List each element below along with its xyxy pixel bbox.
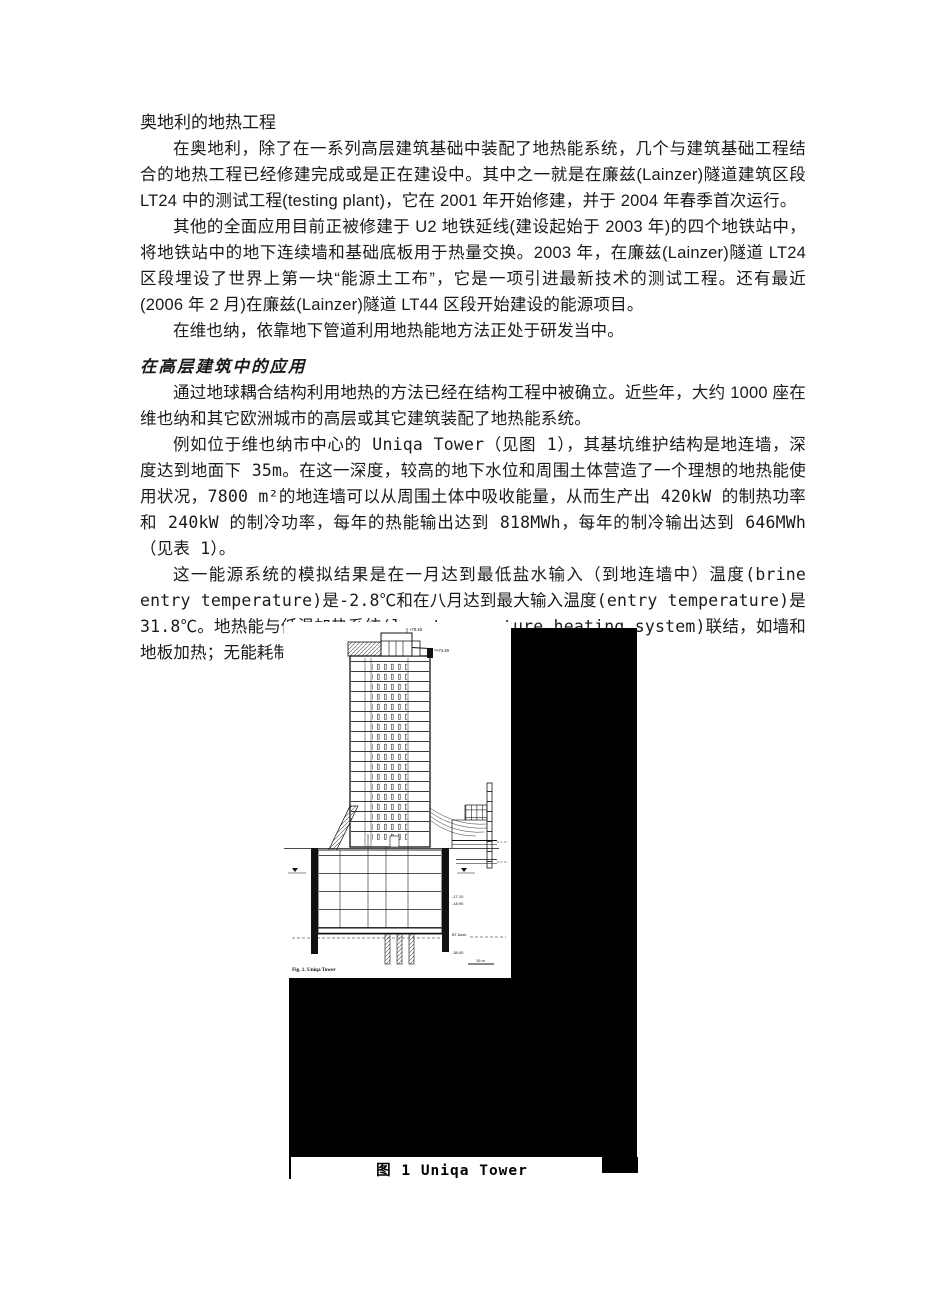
elevation-label-b1: -17.10 [452,894,464,899]
annex [452,783,508,868]
foundation-piles [385,934,414,964]
figure-caption: 图 1 Uniqa Tower [284,1159,638,1180]
roof-penthouse [348,628,437,658]
scale-label: 15 m [476,958,486,963]
document-page: 奥地利的地热工程 在奥地利，除了在一系列高层建筑基础中装配了地热能系统，几个与建… [0,0,926,1309]
tower-body [350,656,430,847]
section-heading: 在高层建筑中的应用 [140,354,806,380]
elevation-label-wallbase: -38.00 [452,950,464,955]
text-column: 奥地利的地热工程 在奥地利，除了在一系列高层建筑基础中装配了地热能系统，几个与建… [140,110,806,666]
redaction-block-bottom [289,978,637,1157]
figure: +79.48 +74.48 [284,622,638,1182]
paragraph: 例如位于维也纳市中心的 Uniqa Tower（见图 1），其基坑维护结构是地连… [140,432,806,562]
paragraph: 在奥地利，除了在一系列高层建筑基础中装配了地热能系统，几个与建筑基础工程结合的地… [140,136,806,214]
elevation-label-b2: -18.90 [452,901,464,906]
elevation-label-top: +79.48 [409,627,423,632]
redaction-block-right [511,628,637,979]
tower-section-drawing: +79.48 +74.48 [284,622,511,978]
document-title: 奥地利的地热工程 [140,110,806,136]
excavation-label: BT Aush. [452,933,467,937]
diaphragm-wall-right [442,848,449,952]
paragraph: 在维也纳，依靠地下管道利用地热能地方法正处于研发当中。 [140,318,806,344]
paragraph: 其他的全面应用目前正被修建于 U2 地铁延线(建设起始于 2003 年)的四个地… [140,214,806,318]
drawing-label: Fig. 1. Uniqa Tower [292,967,336,973]
paragraph: 通过地球耦合结构利用地热的方法已经在结构工程中被确立。近些年，大约 1000 座… [140,380,806,432]
elevation-label-roof: +74.48 [436,648,450,653]
